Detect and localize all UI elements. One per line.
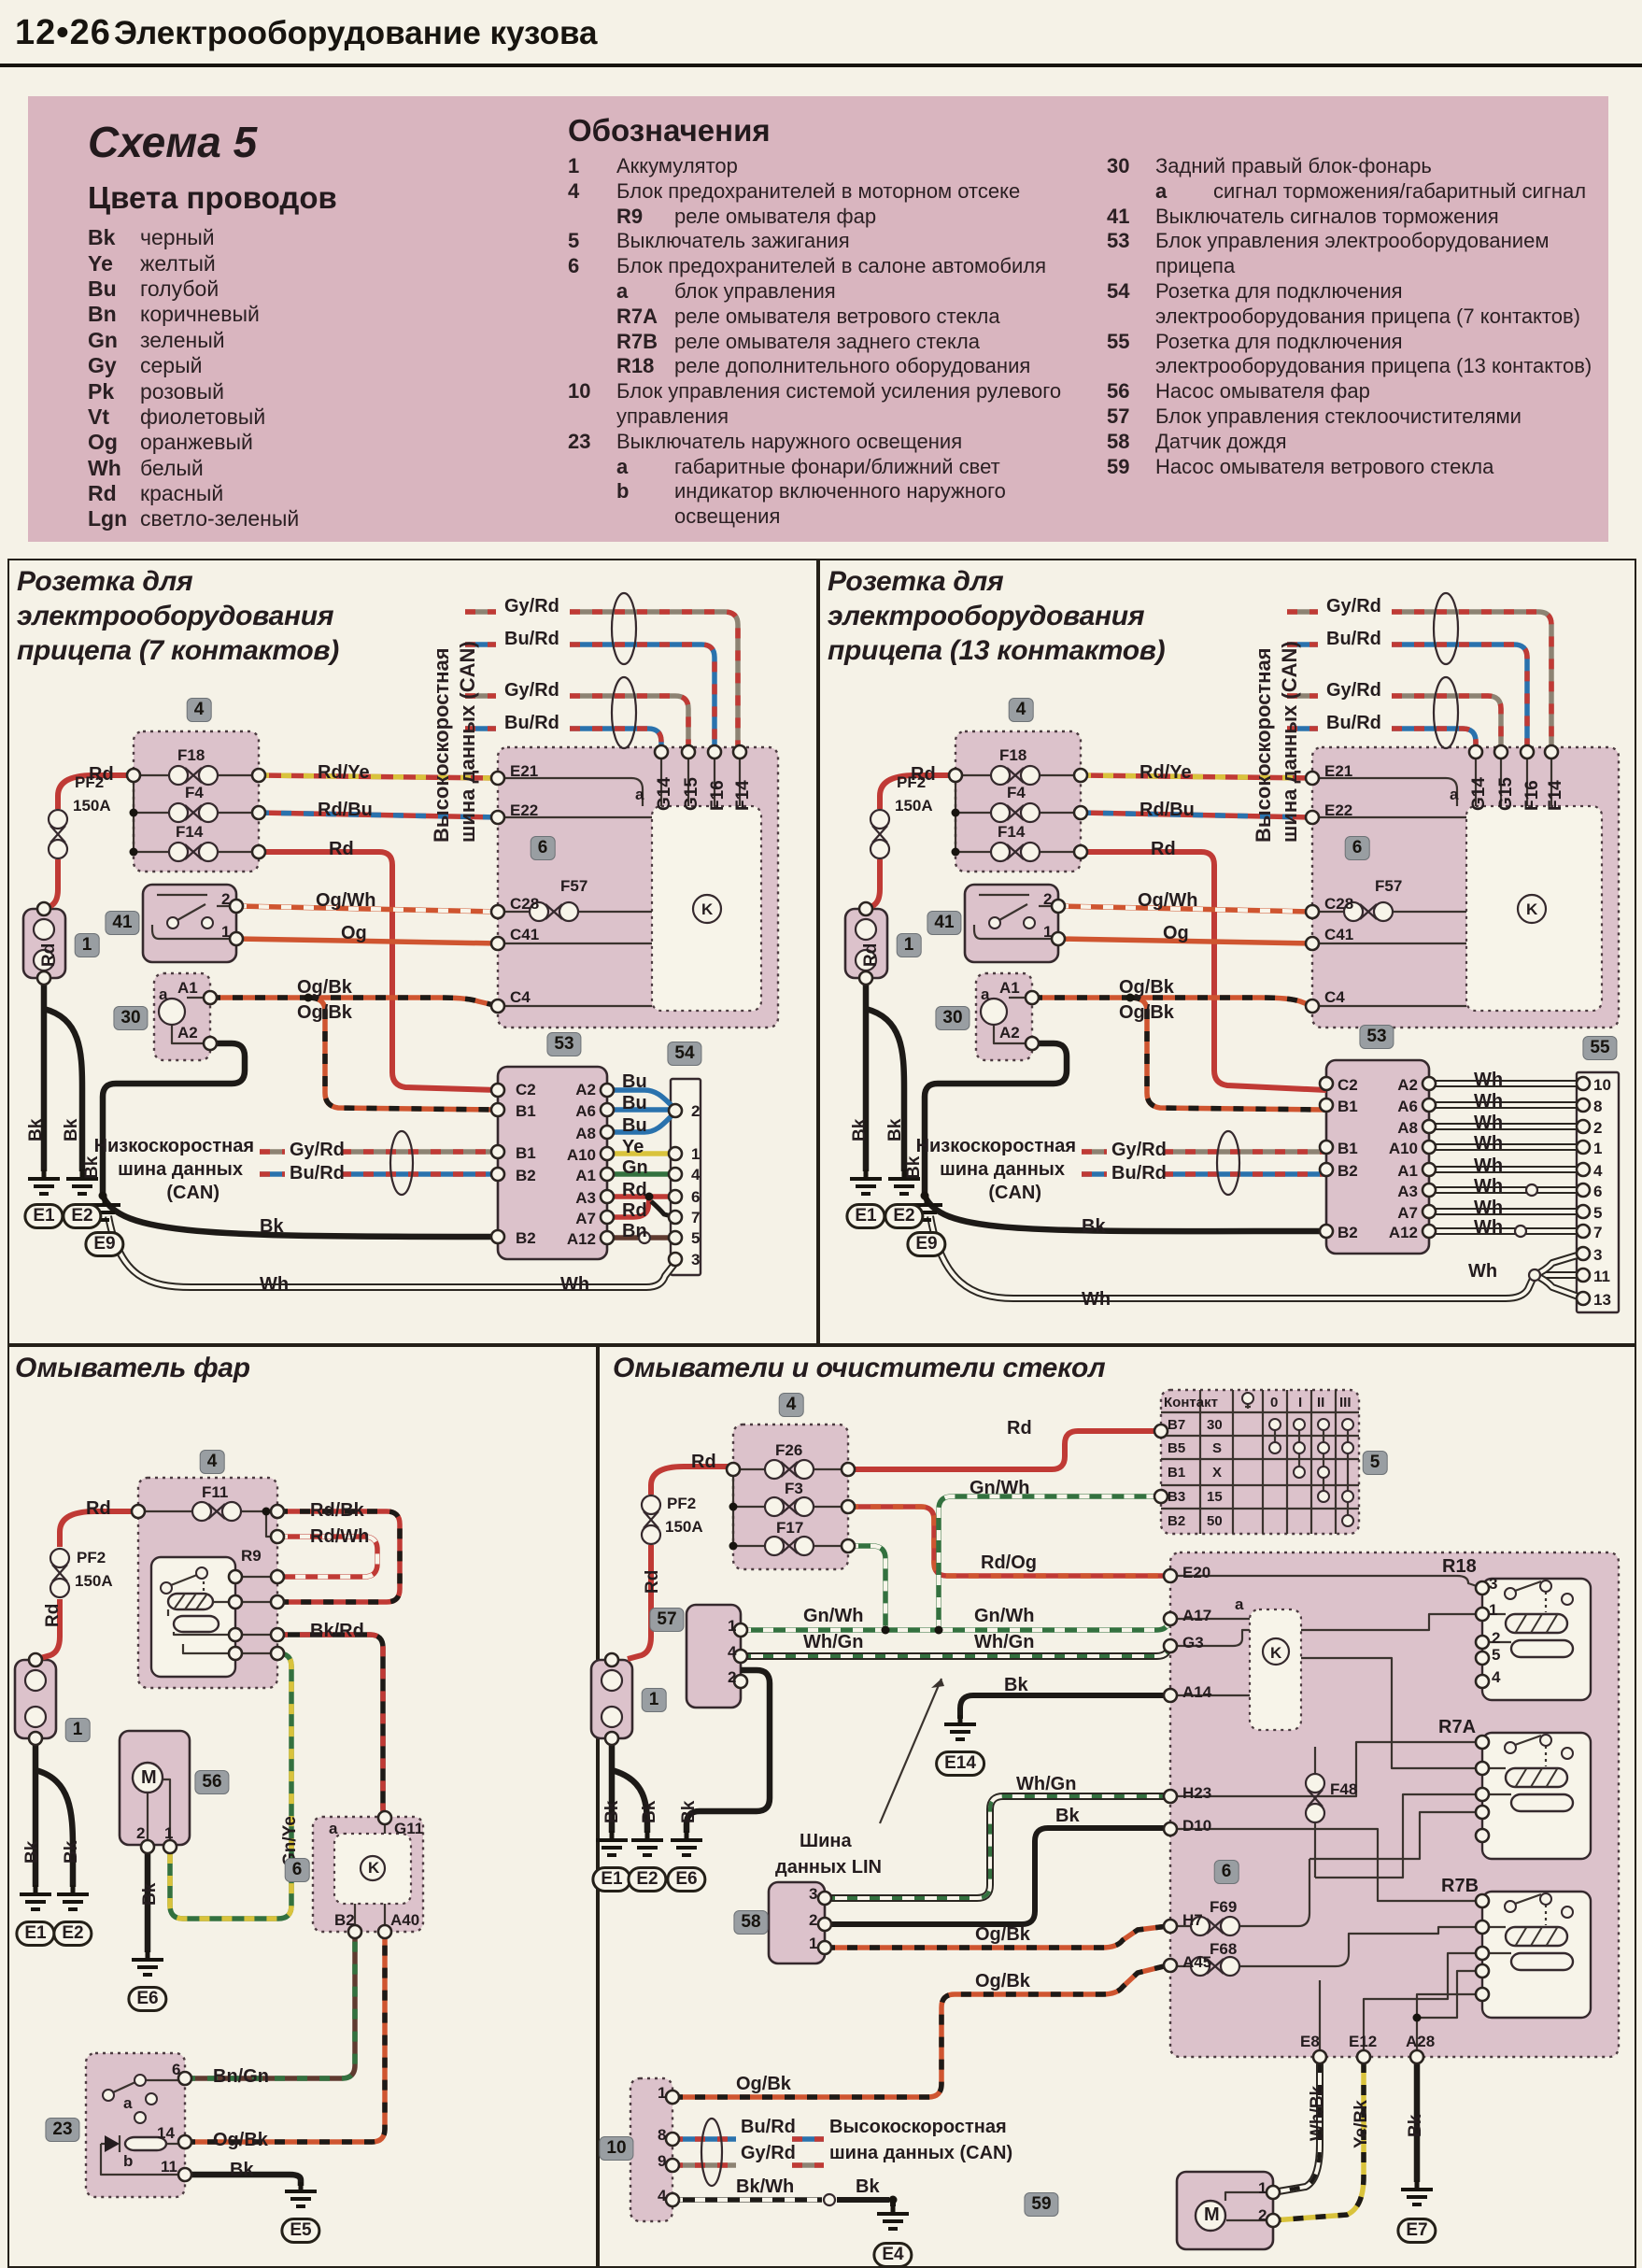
pin-label: 2 xyxy=(1593,1119,1602,1138)
pin-label: C4 xyxy=(510,988,531,1007)
bus-label-vertical: Высокоскоростная xyxy=(1252,647,1276,843)
pin-label: A2 xyxy=(575,1081,596,1099)
pin-label: A2 xyxy=(999,1024,1020,1042)
pin-label: F18 xyxy=(177,746,205,765)
pin-label: B2 xyxy=(516,1229,536,1248)
pin-label: a xyxy=(635,786,644,804)
pin-label: 6 xyxy=(691,1188,700,1207)
pin-label: A6 xyxy=(575,1102,596,1121)
pin-label: 1 xyxy=(691,1145,700,1164)
wire-label-vertical: Ye/Bk xyxy=(1352,2100,1372,2148)
pin-label: C2 xyxy=(516,1081,536,1099)
wire-label: Gy/Rd xyxy=(1326,596,1381,617)
pin-label: A1 xyxy=(177,979,198,998)
pin-label: C2 xyxy=(1338,1076,1358,1095)
pin-label: A8 xyxy=(1397,1119,1418,1138)
pin-label: A10 xyxy=(567,1146,596,1165)
component-badge: 6 xyxy=(285,1858,310,1882)
pin-label: 150A xyxy=(895,797,933,815)
pin-label: 5 xyxy=(691,1229,700,1248)
pin-label: B2 xyxy=(516,1167,536,1185)
panel-title: Омыватель фар xyxy=(15,1353,250,1384)
ground-label: E2 xyxy=(52,1921,92,1947)
pin-label: M xyxy=(141,1767,157,1789)
pin-label: 3 xyxy=(1489,1575,1497,1594)
pin-label: 1 xyxy=(1489,1601,1497,1620)
pin-label: 5 xyxy=(1593,1204,1602,1223)
pin-label: A40 xyxy=(390,1911,419,1930)
pin-label: 2 xyxy=(1492,1629,1500,1648)
wire-label-vertical: Rd xyxy=(643,1570,663,1594)
note-text: Шина xyxy=(800,1831,852,1852)
pin-label: E21 xyxy=(1324,762,1352,781)
pin-label: A12 xyxy=(567,1230,596,1249)
ground-label: E6 xyxy=(127,1986,167,2012)
component-badge: 6 xyxy=(1345,836,1370,860)
wire-label: Bk/Rd xyxy=(310,1621,364,1642)
wire-label-vertical: G14 xyxy=(1469,777,1490,811)
wire-label: Bu/Rd xyxy=(504,713,559,734)
pin-label: 1 xyxy=(1043,923,1052,942)
pin-label: C41 xyxy=(510,926,539,944)
pin-label: A17 xyxy=(1182,1607,1211,1625)
pin-label: A2 xyxy=(177,1024,198,1042)
pin-label: 2 xyxy=(809,1911,817,1930)
pin-label: 6 xyxy=(1593,1183,1602,1201)
wire-label: Rd xyxy=(1007,1418,1032,1439)
wire-label: Gn/Wh xyxy=(974,1606,1034,1627)
component-badge: 59 xyxy=(1024,2192,1058,2217)
wire-label-vertical: G14 xyxy=(655,777,675,811)
table-label: B5 xyxy=(1168,1440,1185,1456)
wire-label: Rd/Bk xyxy=(310,1500,364,1522)
pin-label: 1 xyxy=(728,1617,736,1636)
pin-label: H7 xyxy=(1182,1911,1203,1930)
panel-title: Омыватели и очистители стекол xyxy=(613,1353,1105,1384)
wire-label: Gy/Rd xyxy=(741,2143,796,2164)
pin-label: B1 xyxy=(516,1144,536,1163)
wire-label: Wh/Gn xyxy=(803,1632,863,1653)
pin-label: 4 xyxy=(728,1643,736,1662)
pin-label: R9 xyxy=(241,1547,262,1566)
pin-label: a xyxy=(123,2094,132,2113)
wire-label: Rd xyxy=(329,839,354,860)
wire-label: Rd/Og xyxy=(981,1552,1037,1574)
table-label: 15 xyxy=(1207,1489,1223,1505)
pin-label: B2 xyxy=(334,1911,355,1930)
wire-label: Og/Bk xyxy=(975,1971,1030,1992)
panel-title: электрооборудования xyxy=(17,601,333,632)
ground-label: E1 xyxy=(23,1203,64,1229)
pin-label: A28 xyxy=(1406,2033,1435,2051)
wire-label: Gy/Rd xyxy=(1326,680,1381,702)
wiring-artwork xyxy=(0,0,1642,2268)
wire-label: Og/Wh xyxy=(1138,890,1197,912)
pin-label: K xyxy=(701,900,713,919)
pin-label: E22 xyxy=(510,801,538,820)
pin-label: D10 xyxy=(1182,1817,1211,1836)
pin-label: b xyxy=(123,2152,133,2171)
pin-label: A1 xyxy=(999,979,1020,998)
pin-label: A12 xyxy=(1389,1224,1418,1242)
pin-label: 14 xyxy=(157,2124,175,2143)
pin-label: A1 xyxy=(1397,1162,1418,1181)
wire-label: Wh xyxy=(1474,1176,1503,1198)
component-badge: 6 xyxy=(1214,1860,1239,1884)
panel-title: прицепа (7 контактов) xyxy=(17,635,339,667)
wire-label-vertical: Wh/Bk xyxy=(1308,2086,1328,2141)
pin-label: a xyxy=(1450,786,1458,804)
wire-label-vertical: F16 xyxy=(708,780,729,811)
component-badge: 1 xyxy=(642,1688,667,1712)
wire-label: Wh xyxy=(1474,1091,1503,1113)
ground-label: E2 xyxy=(62,1203,102,1229)
pin-label: E8 xyxy=(1300,2033,1320,2051)
wire-label-vertical: Bk xyxy=(679,1801,700,1823)
wire-label: Og xyxy=(341,923,367,944)
component-badge: 58 xyxy=(733,1910,768,1935)
pin-label: PF2 xyxy=(77,1549,106,1567)
wire-label: Rd/Wh xyxy=(310,1526,369,1548)
pin-label: F26 xyxy=(775,1441,802,1460)
component-badge: 41 xyxy=(105,911,139,935)
wire-label-vertical: F14 xyxy=(1546,780,1566,811)
component-badge: 1 xyxy=(65,1718,91,1742)
pin-label: H23 xyxy=(1182,1784,1211,1803)
wire-label: Rd xyxy=(86,1498,111,1520)
pin-label: PF2 xyxy=(75,773,104,792)
wire-label: Gn xyxy=(622,1157,648,1179)
pin-label: a xyxy=(329,1820,337,1838)
wire-label: Og xyxy=(1163,923,1189,944)
pin-label: A14 xyxy=(1182,1683,1211,1702)
component-badge: 4 xyxy=(779,1393,804,1417)
wire-label: Bu/Rd xyxy=(1111,1163,1167,1184)
wire-label: Og/Bk xyxy=(736,2074,791,2095)
pin-label: C41 xyxy=(1324,926,1353,944)
wire-label: Rd/Bu xyxy=(318,800,373,821)
bus-label-vertical: шина данных (CAN) xyxy=(456,641,480,843)
wire-label: Bu/Rd xyxy=(1326,629,1381,650)
component-badge: 4 xyxy=(1009,698,1034,722)
pin-label: 8 xyxy=(658,2126,666,2145)
wire-label: Og/Bk xyxy=(297,977,352,999)
pin-label: B2 xyxy=(1338,1224,1358,1242)
wire-label: Bu xyxy=(622,1115,647,1137)
component-badge: 1 xyxy=(75,933,100,957)
pin-label: B1 xyxy=(516,1102,536,1121)
pin-label: 10 xyxy=(1593,1076,1611,1095)
note-text: шина данных xyxy=(118,1159,243,1181)
pin-label: 13 xyxy=(1593,1291,1611,1310)
ground-label: E5 xyxy=(280,2218,320,2244)
pin-label: F14 xyxy=(998,823,1025,842)
panel-title: прицепа (13 контактов) xyxy=(828,635,1165,667)
component-badge: 30 xyxy=(113,1006,148,1030)
pin-label: R18 xyxy=(1442,1556,1477,1578)
wire-label-vertical: Bk xyxy=(26,1119,47,1141)
wire-label: Bu xyxy=(622,1093,647,1114)
pin-label: F17 xyxy=(776,1519,803,1538)
pin-label: 3 xyxy=(1593,1246,1602,1265)
wire-label: Rd/Bu xyxy=(1139,800,1195,821)
table-label: X xyxy=(1212,1465,1222,1481)
pin-label: G11 xyxy=(394,1820,423,1838)
pin-label: A7 xyxy=(1397,1204,1418,1223)
component-badge: 56 xyxy=(194,1770,229,1794)
wire-label: Og/Wh xyxy=(316,890,375,912)
pin-label: B1 xyxy=(1338,1098,1358,1116)
wire-label: Gy/Rd xyxy=(504,680,559,702)
table-label: 30 xyxy=(1207,1417,1223,1433)
wire-label: Gy/Rd xyxy=(1111,1140,1167,1161)
pin-label: F14 xyxy=(176,823,203,842)
component-badge: 6 xyxy=(531,836,556,860)
pin-label: 1 xyxy=(1258,2179,1267,2198)
pin-label: F11 xyxy=(202,1483,228,1502)
wire-label-vertical: Bk xyxy=(904,1156,925,1179)
pin-label: F69 xyxy=(1210,1898,1237,1917)
pin-label: E21 xyxy=(510,762,538,781)
wire-label: Og/Bk xyxy=(1119,1002,1174,1024)
table-label: Контакт xyxy=(1164,1395,1218,1410)
component-badge: 4 xyxy=(200,1450,225,1474)
table-label: B3 xyxy=(1168,1489,1185,1505)
wire-label: Rd xyxy=(622,1200,647,1222)
component-badge: 55 xyxy=(1582,1036,1617,1060)
wire-label: Og/Bk xyxy=(213,2130,268,2151)
pin-label: 8 xyxy=(1593,1098,1602,1116)
panel-title: Розетка для xyxy=(17,566,192,598)
pin-label: 11 xyxy=(1593,1268,1610,1286)
ground-label: E14 xyxy=(935,1751,985,1777)
pin-label: 4 xyxy=(1492,1668,1500,1687)
note-text: шина данных xyxy=(940,1159,1065,1181)
wire-label: Bu/Rd xyxy=(741,2117,796,2138)
note-text: Низкоскоростная xyxy=(916,1136,1076,1157)
wire-label: Bn xyxy=(622,1221,647,1242)
pin-label: 150A xyxy=(75,1572,113,1591)
pin-label: A1 xyxy=(575,1167,596,1185)
note-text: Низкоскоростная xyxy=(94,1136,254,1157)
component-badge: 23 xyxy=(45,2118,79,2142)
pin-label: a xyxy=(981,985,989,1004)
pin-label: 1 xyxy=(1593,1140,1602,1158)
component-badge: 41 xyxy=(927,911,961,935)
wire-label-vertical: Rd xyxy=(43,1604,64,1627)
wire-label: Gn/Wh xyxy=(970,1478,1029,1499)
pin-label: K xyxy=(1526,900,1537,919)
pin-label: C28 xyxy=(510,895,539,914)
ground-label: E4 xyxy=(872,2242,913,2268)
note-text: (CAN) xyxy=(988,1183,1041,1204)
wire-label: Og/Bk xyxy=(297,1002,352,1024)
pin-label: 3 xyxy=(809,1885,817,1904)
component-badge: 57 xyxy=(649,1608,684,1632)
component-badge: 53 xyxy=(546,1032,581,1056)
wire-label: Gy/Rd xyxy=(504,596,559,617)
pin-label: E20 xyxy=(1182,1564,1210,1582)
wire-label: Wh xyxy=(1474,1217,1503,1239)
ground-label: E1 xyxy=(15,1921,55,1947)
ground-label: E9 xyxy=(906,1231,946,1257)
wire-label-vertical: Bk xyxy=(640,1801,660,1823)
pin-label: 150A xyxy=(665,1518,703,1537)
ground-label: E7 xyxy=(1396,2218,1437,2244)
wire-label-vertical: Bk xyxy=(602,1801,623,1823)
pin-label: F3 xyxy=(785,1480,803,1498)
pin-label: F48 xyxy=(1330,1780,1357,1799)
wire-label: Bk xyxy=(230,2160,254,2181)
wire-label: Wh/Gn xyxy=(974,1632,1034,1653)
note-text: данных LIN xyxy=(775,1857,882,1878)
wire-label: Og/Bk xyxy=(1119,977,1174,999)
pin-label: 2 xyxy=(728,1668,736,1687)
pin-label: 6 xyxy=(172,2061,180,2079)
pin-label: B2 xyxy=(1338,1162,1358,1181)
note-text: Высокоскоростная xyxy=(829,2117,1007,2138)
wire-label-vertical: Bk xyxy=(1406,2115,1426,2137)
component-badge: 10 xyxy=(599,2136,633,2161)
pin-label: F57 xyxy=(560,877,587,896)
wire-label-vertical: Bk xyxy=(62,1119,82,1141)
pin-label: A8 xyxy=(575,1125,596,1143)
pin-label: E22 xyxy=(1324,801,1352,820)
pin-label: G3 xyxy=(1182,1634,1204,1652)
wire-label-vertical: Rd xyxy=(861,943,882,967)
wire-label: Rd xyxy=(691,1452,716,1473)
panel-title: Розетка для xyxy=(828,566,1003,598)
pin-label: A3 xyxy=(575,1189,596,1208)
wire-label-vertical: Bk xyxy=(140,1883,161,1906)
ground-label: E1 xyxy=(845,1203,885,1229)
wire-label: Rd/Ye xyxy=(1139,762,1192,784)
component-badge: 53 xyxy=(1359,1025,1394,1049)
pin-label: 4 xyxy=(691,1166,700,1184)
pin-label: a xyxy=(159,985,167,1004)
pin-label: C4 xyxy=(1324,988,1345,1007)
wire-label-vertical: F16 xyxy=(1522,780,1543,811)
pin-label: 7 xyxy=(691,1209,700,1227)
pin-label: A45 xyxy=(1182,1953,1211,1972)
wire-label: Rd xyxy=(1151,839,1176,860)
wire-label: Rd/Ye xyxy=(318,762,370,784)
wire-label: Gy/Rd xyxy=(290,1140,345,1161)
wire-label: Bk/Wh xyxy=(736,2176,794,2198)
wire-label-vertical: G15 xyxy=(1496,777,1517,811)
wire-label: Wh xyxy=(1474,1155,1503,1177)
wire-label: Wh/Gn xyxy=(1016,1774,1076,1795)
pin-label: 1 xyxy=(221,923,230,942)
note-text: шина данных (CAN) xyxy=(829,2143,1012,2164)
component-badge: 4 xyxy=(187,698,212,722)
panel-title: электрооборудования xyxy=(828,601,1144,632)
pin-label: 2 xyxy=(1043,890,1052,909)
wire-label-vertical: Bk xyxy=(22,1841,43,1864)
pin-label: M xyxy=(1204,2204,1220,2226)
wire-label-vertical: Bk xyxy=(82,1156,103,1179)
wire-label: Wh xyxy=(1474,1198,1503,1219)
wire-label: Bu/Rd xyxy=(1326,713,1381,734)
pin-label: PF2 xyxy=(897,773,926,792)
table-label: B1 xyxy=(1168,1465,1185,1481)
wire-label: Wh xyxy=(1082,1289,1111,1311)
wire-label: Ye xyxy=(622,1137,644,1158)
pin-label: 1 xyxy=(164,1824,173,1843)
wire-label: Gn/Wh xyxy=(803,1606,863,1627)
ground-label: E2 xyxy=(627,1866,667,1892)
wire-label: Wh xyxy=(1474,1133,1503,1155)
bus-label-vertical: шина данных (CAN) xyxy=(1278,641,1302,843)
pin-label: K xyxy=(1270,1644,1281,1663)
table-label: II xyxy=(1317,1395,1324,1410)
pin-label: 1 xyxy=(809,1935,817,1953)
pin-label: R7A xyxy=(1438,1717,1476,1738)
wire-label-vertical: Bk xyxy=(885,1119,906,1141)
pin-label: 2 xyxy=(136,1824,145,1843)
pin-label: A10 xyxy=(1389,1140,1418,1158)
table-label: B7 xyxy=(1168,1417,1185,1433)
pin-label: B1 xyxy=(1338,1140,1358,1158)
wire-label: Rd xyxy=(622,1180,647,1201)
pin-label: A6 xyxy=(1397,1098,1418,1116)
wire-label: Bk xyxy=(260,1216,284,1238)
pin-label: K xyxy=(368,1859,379,1878)
wire-label: Wh xyxy=(1474,1113,1503,1134)
pin-label: 2 xyxy=(221,890,230,909)
table-label: B2 xyxy=(1168,1513,1185,1529)
pin-label: F68 xyxy=(1210,1940,1237,1959)
pin-label: 7 xyxy=(1593,1224,1602,1242)
pin-label: 3 xyxy=(691,1251,700,1269)
wire-label: Bk xyxy=(1004,1675,1028,1696)
bus-label-vertical: Высокоскоростная xyxy=(430,647,454,843)
wire-label: Bk xyxy=(1055,1806,1080,1827)
table-label: III xyxy=(1339,1395,1352,1410)
component-badge: 5 xyxy=(1363,1451,1388,1475)
note-text: (CAN) xyxy=(166,1183,219,1204)
pin-label: A2 xyxy=(1397,1076,1418,1095)
ground-label: E1 xyxy=(591,1866,631,1892)
wire-label: Wh xyxy=(1474,1070,1503,1091)
table-label: 0 xyxy=(1270,1395,1278,1410)
ground-label: E2 xyxy=(884,1203,924,1229)
component-badge: 54 xyxy=(667,1042,701,1066)
pin-label: A3 xyxy=(1397,1183,1418,1201)
wire-label: Og/Bk xyxy=(975,1924,1030,1946)
table-label: I xyxy=(1298,1395,1302,1410)
pin-label: PF2 xyxy=(667,1495,696,1513)
wire-label: Bk xyxy=(1082,1216,1106,1238)
wire-label: Wh xyxy=(260,1274,289,1296)
wire-label-vertical: Bk xyxy=(850,1119,871,1141)
wire-label-vertical: F14 xyxy=(733,780,754,811)
wire-label: Bu/Rd xyxy=(504,629,559,650)
wire-label: Wh xyxy=(1468,1261,1497,1283)
pin-label: 1 xyxy=(658,2084,666,2103)
pin-label: 5 xyxy=(1492,1646,1500,1665)
ground-label: E6 xyxy=(666,1866,706,1892)
pin-label: F4 xyxy=(185,784,204,802)
pin-label: 2 xyxy=(691,1102,700,1121)
pin-label: C28 xyxy=(1324,895,1353,914)
pin-label: 9 xyxy=(658,2152,666,2171)
wire-label-vertical: G15 xyxy=(682,777,702,811)
wire-label-vertical: Bk xyxy=(62,1841,82,1864)
pin-label: 150A xyxy=(73,797,111,815)
component-badge: 30 xyxy=(935,1006,970,1030)
pin-label: F4 xyxy=(1007,784,1026,802)
